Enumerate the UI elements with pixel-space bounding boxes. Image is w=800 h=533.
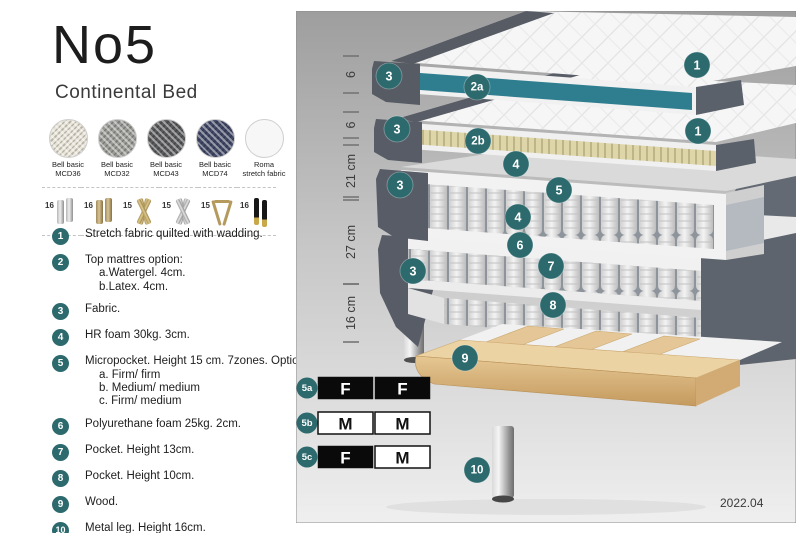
spec-text: Fabric. bbox=[85, 303, 120, 320]
fabric-swatch-item: Bell basicMCD74 bbox=[192, 119, 238, 178]
leg-shape bbox=[262, 200, 267, 227]
spec-badge-9: 9 bbox=[52, 496, 69, 513]
leg-height-label: 15 bbox=[201, 201, 210, 210]
spec-badge-5: 5 bbox=[52, 355, 69, 372]
diagram-panel: 6621 cm27 cm16 cm 132a132b45346378910 5a… bbox=[296, 11, 796, 523]
hairpin-gold-icon bbox=[211, 196, 235, 228]
leg-height-label: 16 bbox=[45, 201, 54, 210]
fabric-swatch-item: Bell basicMCD43 bbox=[143, 119, 189, 178]
badge-label: 2b bbox=[471, 136, 484, 148]
badge-label: 8 bbox=[550, 299, 557, 313]
diagram-badge-5: 5 bbox=[546, 177, 572, 203]
spec-item-2: 2Top mattres option:a.Watergel. 4cm.b.La… bbox=[52, 254, 294, 294]
spec-item-7: 7Pocket. Height 13cm. bbox=[52, 444, 294, 461]
badge-label: 6 bbox=[517, 239, 524, 253]
spec-item-4: 4HR foam 30kg. 3cm. bbox=[52, 329, 294, 346]
fabric-swatch-item: Romastretch fabric bbox=[241, 119, 287, 178]
leg-shape bbox=[214, 200, 230, 203]
diagram-badge-3: 3 bbox=[400, 258, 426, 284]
spec-list: 1Stretch fabric quilted with wadding.2To… bbox=[52, 228, 294, 533]
spec-text: Top mattres option:a.Watergel. 4cm.b.Lat… bbox=[85, 254, 186, 294]
ruler-label: 27 cm bbox=[344, 225, 358, 259]
firmness-badge-label: 5b bbox=[301, 418, 312, 429]
cylinder-black-gold-icon bbox=[250, 196, 274, 228]
firmness-value: F bbox=[397, 380, 407, 399]
floor-shadow bbox=[386, 499, 706, 515]
badge-label: 5 bbox=[556, 184, 563, 198]
firmness-table: 5aFF5bMM5cFM bbox=[297, 377, 431, 468]
leg-height-label: 15 bbox=[123, 201, 132, 210]
firmness-badge-label: 5c bbox=[302, 452, 313, 463]
fabric-swatch-label: Bell basicMCD32 bbox=[101, 161, 133, 178]
spec-item-5: 5Micropocket. Height 15 cm. 7zones. Opti… bbox=[52, 355, 294, 409]
firmness-value: M bbox=[338, 415, 352, 434]
leg-height-label: 16 bbox=[240, 201, 249, 210]
spec-item-9: 9Wood. bbox=[52, 496, 294, 513]
fabric-swatch bbox=[245, 119, 284, 158]
badge-label: 10 bbox=[471, 465, 484, 477]
spec-badge-7: 7 bbox=[52, 444, 69, 461]
leg-shape bbox=[105, 198, 112, 222]
badge-label: 1 bbox=[694, 59, 701, 73]
product-title: No5 bbox=[52, 14, 157, 76]
cross-silver-icon bbox=[172, 196, 196, 228]
fabric-swatch-item: Bell basicMCD36 bbox=[45, 119, 91, 178]
badge-label: 9 bbox=[462, 352, 469, 366]
leg-shape bbox=[96, 200, 103, 224]
diagram-badge-4: 4 bbox=[503, 151, 529, 177]
leg-height-label: 15 bbox=[162, 201, 171, 210]
spec-item-1: 1Stretch fabric quilted with wadding. bbox=[52, 228, 294, 245]
fabric-swatch bbox=[98, 119, 137, 158]
badge-label: 3 bbox=[386, 70, 393, 84]
firmness-badge-label: 5a bbox=[302, 383, 313, 394]
spec-badge-6: 6 bbox=[52, 418, 69, 435]
leg-shape bbox=[66, 198, 73, 222]
badge-label: 3 bbox=[410, 265, 417, 279]
version-label: 2022.04 bbox=[720, 496, 764, 510]
spec-badge-10: 10 bbox=[52, 522, 69, 533]
cylinder-chrome-icon bbox=[55, 196, 79, 228]
diagram-badge-6: 6 bbox=[507, 232, 533, 258]
diagram-badge-8: 8 bbox=[540, 292, 566, 318]
badge-label: 4 bbox=[515, 211, 522, 225]
diagram-badge-3: 3 bbox=[376, 63, 402, 89]
product-subtitle: Continental Bed bbox=[55, 82, 198, 104]
cylinder-brass-icon bbox=[94, 196, 118, 228]
cross-gold-icon bbox=[133, 196, 157, 228]
fabric-swatch bbox=[49, 119, 88, 158]
fabric-swatch-item: Bell basicMCD32 bbox=[94, 119, 140, 178]
spec-badge-8: 8 bbox=[52, 470, 69, 487]
spec-text: Stretch fabric quilted with wadding. bbox=[85, 228, 263, 245]
firmness-value: M bbox=[395, 415, 409, 434]
fabric-swatch bbox=[196, 119, 235, 158]
spec-text: Pocket. Height 13cm. bbox=[85, 444, 194, 461]
spec-badge-2: 2 bbox=[52, 254, 69, 271]
spec-text: HR foam 30kg. 3cm. bbox=[85, 329, 190, 346]
diagram-badge-2a: 2a bbox=[464, 74, 490, 100]
diagram-badge-4: 4 bbox=[505, 204, 531, 230]
ruler-label: 16 cm bbox=[344, 296, 358, 330]
diagram-badge-3: 3 bbox=[387, 172, 413, 198]
infographic-page: No5 Continental Bed Bell basicMCD36Bell … bbox=[0, 0, 800, 533]
badge-label: 1 bbox=[695, 125, 702, 139]
spec-text: Metal leg. Height 16cm. bbox=[85, 522, 206, 533]
leg-shape bbox=[211, 200, 221, 226]
diagram-badge-3: 3 bbox=[384, 116, 410, 142]
badge-label: 4 bbox=[513, 158, 520, 172]
leg-height-label: 16 bbox=[84, 201, 93, 210]
diagram-badge-1: 1 bbox=[684, 52, 710, 78]
spec-badge-3: 3 bbox=[52, 303, 69, 320]
fabric-swatch-label: Bell basicMCD43 bbox=[150, 161, 182, 178]
leg-shape bbox=[254, 198, 259, 225]
leg-shape bbox=[57, 200, 64, 224]
fabric-swatch-label: Bell basicMCD36 bbox=[52, 161, 84, 178]
badge-label: 7 bbox=[548, 260, 555, 274]
spec-item-6: 6Polyurethane foam 25kg. 2cm. bbox=[52, 418, 294, 435]
metal-leg-front bbox=[492, 426, 514, 503]
leg-shape bbox=[222, 200, 232, 226]
spec-panel: No5 Continental Bed Bell basicMCD36Bell … bbox=[0, 0, 296, 533]
fabric-swatches: Bell basicMCD36Bell basicMCD32Bell basic… bbox=[45, 119, 287, 178]
diagram-badge-10: 10 bbox=[464, 457, 490, 483]
diagram-badge-2b: 2b bbox=[465, 128, 491, 154]
firmness-value: M bbox=[395, 449, 409, 468]
spec-text: Wood. bbox=[85, 496, 118, 513]
bed-diagram: 6621 cm27 cm16 cm 132a132b45346378910 5a… bbox=[296, 11, 796, 523]
diagram-badge-7: 7 bbox=[538, 253, 564, 279]
ruler-label: 21 cm bbox=[344, 154, 358, 188]
ruler-label: 6 bbox=[344, 71, 358, 78]
spec-text: Pocket. Height 10cm. bbox=[85, 470, 194, 487]
firmness-value: F bbox=[340, 449, 350, 468]
spec-item-3: 3Fabric. bbox=[52, 303, 294, 320]
spec-item-8: 8Pocket. Height 10cm. bbox=[52, 470, 294, 487]
fabric-swatch-label: Romastretch fabric bbox=[243, 161, 286, 178]
ruler-label: 6 bbox=[344, 121, 358, 128]
spec-item-10: 10Metal leg. Height 16cm. bbox=[52, 522, 294, 533]
fabric-swatch bbox=[147, 119, 186, 158]
badge-label: 3 bbox=[397, 179, 404, 193]
spec-badge-1: 1 bbox=[52, 228, 69, 245]
badge-label: 3 bbox=[394, 123, 401, 137]
diagram-badge-1: 1 bbox=[685, 118, 711, 144]
spec-text: Polyurethane foam 25kg. 2cm. bbox=[85, 418, 241, 435]
spec-text: Micropocket. Height 15 cm. 7zones. Optio… bbox=[85, 355, 308, 409]
fabric-swatch-label: Bell basicMCD74 bbox=[199, 161, 231, 178]
spec-badge-4: 4 bbox=[52, 329, 69, 346]
badge-label: 2a bbox=[471, 82, 484, 94]
firmness-value: F bbox=[340, 380, 350, 399]
diagram-badge-9: 9 bbox=[452, 345, 478, 371]
